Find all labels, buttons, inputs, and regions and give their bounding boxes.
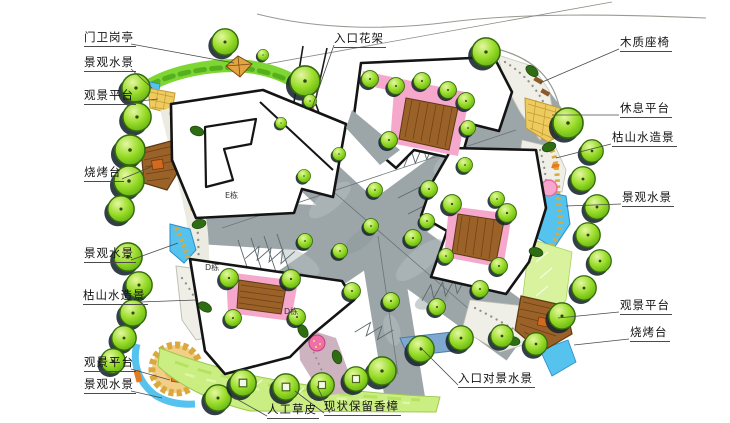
label-artificial-turf: 人工草皮 [267, 403, 319, 419]
label-bbq-station-1: 烧烤台 [84, 166, 124, 182]
building-label-d1: D栋 [205, 262, 219, 273]
label-viewing-platform-1: 观景平台 [84, 89, 136, 105]
building-label-d2: D栋 [284, 306, 298, 317]
label-water-feature-1: 景观水景 [84, 56, 136, 72]
label-water-feature-3: 景观水景 [84, 378, 136, 394]
label-water-feature-2: 景观水景 [84, 247, 136, 263]
label-preserved-camphor: 现状保留香樟 [324, 400, 401, 416]
label-dry-landscape-1: 枯山水造景 [83, 289, 148, 305]
building-label-e: E栋 [225, 190, 238, 201]
label-bbq-station-2: 烧烤台 [630, 326, 670, 342]
label-water-feature-4: 景观水景 [622, 191, 674, 207]
label-rest-platform: 休息平台 [620, 102, 672, 118]
label-entrance-pergola: 入口花架 [334, 32, 386, 48]
label-entrance-water: 入口对景水景 [458, 372, 535, 388]
label-viewing-platform-3: 观景平台 [620, 299, 672, 315]
guard-booth [226, 56, 252, 77]
label-viewing-platform-2: 观景平台 [84, 356, 136, 372]
label-guard-booth: 门卫岗亭 [84, 31, 136, 47]
label-wooden-seats: 木质座椅 [620, 36, 672, 52]
landscape-site-plan: 门卫岗亭 景观水景 观景平台 烧烤台 景观水景 枯山水造景 观景平台 景观水景 … [0, 0, 730, 423]
label-dry-landscape-2: 枯山水造景 [612, 131, 677, 147]
